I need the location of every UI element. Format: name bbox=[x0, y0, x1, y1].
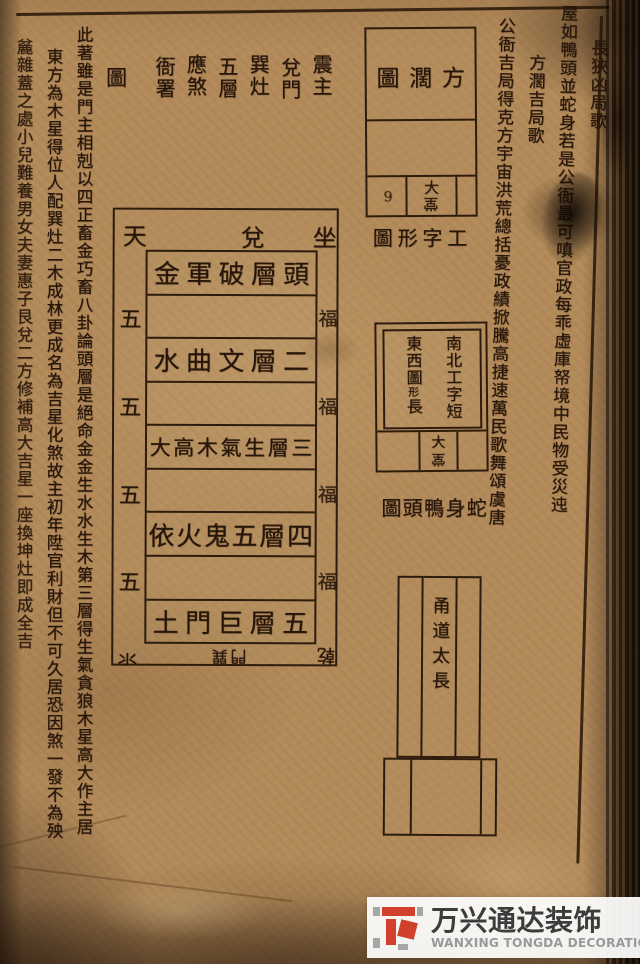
left-column-1: 此著雖是門主相剋以四正畜金巧畜八卦論頭層是絕命金金生水水生木第三層得生氣貪狼木星… bbox=[70, 26, 96, 906]
square-wide-bottom-row: 9 大堂 bbox=[367, 177, 475, 216]
east-west-post: 長 bbox=[404, 398, 423, 415]
diagram-label-dui: 兌 bbox=[241, 218, 265, 253]
layer-row-4: 四層五鬼火依 bbox=[147, 513, 315, 557]
heading-pair: 兌門 bbox=[276, 57, 305, 174]
verse-columns: 長狹凶局歌 屋如鴨頭並蛇身若是公衙最可嗔官政每乖虛庫帑境中民物受災迍 方濶吉局歌… bbox=[475, 3, 612, 605]
wu-mark: 五 bbox=[119, 302, 141, 334]
i-shape-text-box: 南北工字短 東西圖形長 bbox=[382, 329, 482, 430]
watermark-text: 万兴通达装饰 WANXING TONGDA DECORATION bbox=[431, 906, 640, 950]
five-layer-diagram: 天 兌 坐 頭層破軍金 二層文曲水 三層生氣木高大 四層五鬼火依 五層巨門土 五… bbox=[111, 208, 339, 667]
xun-gate-mark: 巽門 bbox=[209, 646, 249, 670]
verse-title-square-wide: 方濶吉局歌 bbox=[516, 54, 549, 604]
watermark-english: WANXING TONGDA DECORATION bbox=[431, 936, 640, 950]
bottom-cell bbox=[377, 432, 418, 470]
left-column-2: 東方為木星得位人配巽灶二木成林更成名為吉星化煞故主初年陞官利財但不可久居恐因煞一… bbox=[40, 48, 66, 906]
wu-mark: 五 bbox=[118, 565, 140, 597]
i-shape-bottom-row: 大堂 bbox=[377, 430, 486, 471]
heading-pair: 應煞 bbox=[181, 54, 210, 174]
bottom-cell bbox=[458, 432, 486, 470]
verse-square-wide: 公衙吉局得克方宇宙洪荒總括憂政績掀騰高捷速萬民歌舞頌虞唐 bbox=[485, 17, 518, 603]
layer-row-empty bbox=[146, 557, 314, 601]
layer-row-2: 二層文曲水 bbox=[147, 339, 315, 383]
snake-duck-caption: 蛇身鴨頭圖 bbox=[380, 492, 488, 521]
diagram-label-tian: 天 bbox=[123, 217, 147, 252]
paper-stain bbox=[90, 880, 270, 940]
north-south-column: 南北工字短 bbox=[440, 335, 465, 427]
layer-row-empty bbox=[147, 295, 315, 339]
fu-mark: 福 bbox=[318, 392, 337, 419]
wu-mark: 五 bbox=[119, 478, 141, 510]
water-mark-char: 氺 bbox=[117, 644, 137, 673]
qian-mark: 乾 bbox=[317, 643, 335, 669]
square-wide-diagram: 方濶圖 9 大堂 bbox=[364, 27, 477, 218]
east-west-pre: 東西圖 bbox=[403, 335, 422, 386]
left-column-3: 麄雜蓋之處小兒難養男女夫妻惠子艮兌二方修補高大吉星一座換坤灶即成全吉 bbox=[12, 38, 36, 906]
watermark-banner: 万兴通达装饰 WANXING TONGDA DECORATION bbox=[367, 897, 640, 958]
i-shape-caption: 工字形圖 bbox=[368, 222, 472, 251]
fu-mark: 福 bbox=[318, 480, 337, 507]
main-hall-cell: 大堂 bbox=[418, 432, 458, 470]
aisle-base-box bbox=[383, 758, 498, 837]
main-hall-cell: 大堂 bbox=[405, 177, 457, 215]
fu-mark: 福 bbox=[318, 304, 337, 331]
square-wide-caption: 方濶圖 bbox=[366, 29, 475, 120]
section-heading: 震主 兌門 巽灶 五層 應煞 衙署 bbox=[150, 54, 336, 174]
east-west-small-char: 形 bbox=[407, 386, 420, 398]
heading-tu-char: 圖 bbox=[106, 62, 127, 92]
long-aisle-diagram: 甬道太長 bbox=[396, 576, 481, 759]
heading-pair: 衙署 bbox=[150, 56, 179, 174]
bottom-cell: 9 bbox=[367, 177, 405, 215]
fu-mark: 福 bbox=[317, 567, 336, 594]
layer-grid: 頭層破軍金 二層文曲水 三層生氣木高大 四層五鬼火依 五層巨門土 bbox=[144, 250, 317, 645]
scanned-book-page: 此著雖是門主相剋以四正畜金巧畜八卦論頭層是絕命金金生水水生木第三層得生氣貪狼木星… bbox=[0, 0, 640, 964]
heading-pair: 震主 bbox=[307, 54, 336, 174]
layer-row-1: 頭層破軍金 bbox=[147, 252, 315, 296]
heading-pair: 巽灶 bbox=[244, 54, 273, 174]
verse-long-narrow: 屋如鴨頭並蛇身若是公衙最可嗔官政每乖虛庫帑境中民物受災迍 bbox=[547, 4, 581, 604]
diagram-label-zuo: 坐 bbox=[313, 218, 337, 253]
east-west-column: 東西圖形長 bbox=[400, 335, 425, 427]
layer-row-empty bbox=[147, 470, 315, 514]
corner-mark: 9 bbox=[383, 189, 392, 205]
layer-row-3: 三層生氣木高大 bbox=[147, 426, 315, 470]
aisle-label: 甬道太長 bbox=[426, 596, 453, 696]
layer-row-5: 五層巨門土 bbox=[146, 600, 314, 642]
wu-mark: 五 bbox=[119, 390, 141, 422]
heading-pair: 五層 bbox=[213, 56, 242, 174]
bottom-cell bbox=[457, 177, 475, 215]
layer-row-empty bbox=[147, 382, 315, 426]
left-text-columns: 此著雖是門主相剋以四正畜金巧畜八卦論頭層是絕命金金生水水生木第三層得生氣貪狼木星… bbox=[10, 26, 96, 906]
binding-fold bbox=[606, 0, 640, 964]
i-shape-diagram: 南北工字短 東西圖形長 大堂 bbox=[374, 322, 488, 473]
watermark-chinese: 万兴通达装饰 bbox=[431, 906, 640, 936]
wanxing-logo-icon bbox=[373, 904, 423, 952]
